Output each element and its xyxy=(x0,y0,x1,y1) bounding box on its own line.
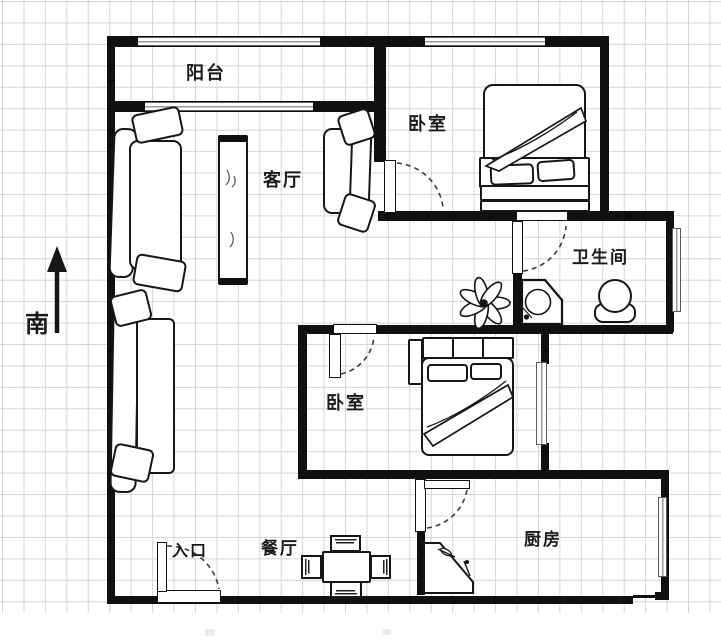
floor-plan: 阳台 卧室 客厅 卫生间 卧室 入口 餐厅 厨房 南 xyxy=(0,0,721,640)
dining-chair-right xyxy=(370,555,391,579)
label-compass-south: 南 xyxy=(25,304,49,339)
window-kitchen-right xyxy=(658,497,667,577)
window-balcony-top xyxy=(138,37,320,46)
bed1-pillow-right xyxy=(536,159,575,183)
bed2-pillow-left xyxy=(427,364,468,382)
window-bedroom1-top xyxy=(425,37,545,46)
label-entrance: 入口 xyxy=(172,537,208,561)
dining-table xyxy=(322,551,371,583)
wall-bedroom2-bottom-kitchen-top xyxy=(298,470,669,479)
label-bathroom: 卫生间 xyxy=(572,243,629,268)
label-living-room: 客厅 xyxy=(263,166,303,192)
label-bedroom2: 卧室 xyxy=(326,389,366,415)
window-bedroom2-right xyxy=(536,362,547,445)
window-bathroom-right xyxy=(672,228,681,312)
toilet-bowl xyxy=(598,279,632,313)
wall-bedroom1-right xyxy=(600,36,609,221)
tv-cabinet-cap-top xyxy=(219,135,247,142)
wall-bedroom2-right-upper xyxy=(541,334,549,364)
bed2-pillow-right xyxy=(470,363,502,380)
wall-bedroom2-left xyxy=(298,325,307,477)
dining-chair-top xyxy=(330,535,361,552)
door-leaf-bathroom xyxy=(512,221,523,274)
label-dining-room: 餐厅 xyxy=(261,534,299,559)
dining-chair-left xyxy=(301,555,322,579)
bed1-headboard-rail xyxy=(480,200,590,212)
wall-bottom-right-corner xyxy=(655,592,669,600)
door-leaf-entrance xyxy=(157,542,167,592)
tv-cabinet xyxy=(218,135,248,285)
bed1-headboard xyxy=(480,185,590,201)
door-leaf-bedroom2 xyxy=(329,334,341,378)
sofa1-seat xyxy=(129,140,182,270)
door-leaf-kitchen xyxy=(424,480,470,489)
label-bedroom1: 卧室 xyxy=(408,110,448,136)
door-opening-bedroom2 xyxy=(333,324,377,334)
tv-cabinet-cap-bottom xyxy=(219,278,247,285)
artifact-speck xyxy=(383,629,391,635)
wall-bedroom1-left xyxy=(374,47,386,162)
label-balcony: 阳台 xyxy=(186,59,226,85)
bed2-headboard xyxy=(422,337,514,359)
door-leaf-bedroom1 xyxy=(384,160,396,213)
dining-chair-bottom xyxy=(330,581,362,598)
bed1-pillow-left xyxy=(490,163,535,186)
label-kitchen: 厨房 xyxy=(524,525,562,550)
artifact-speck xyxy=(205,629,215,636)
